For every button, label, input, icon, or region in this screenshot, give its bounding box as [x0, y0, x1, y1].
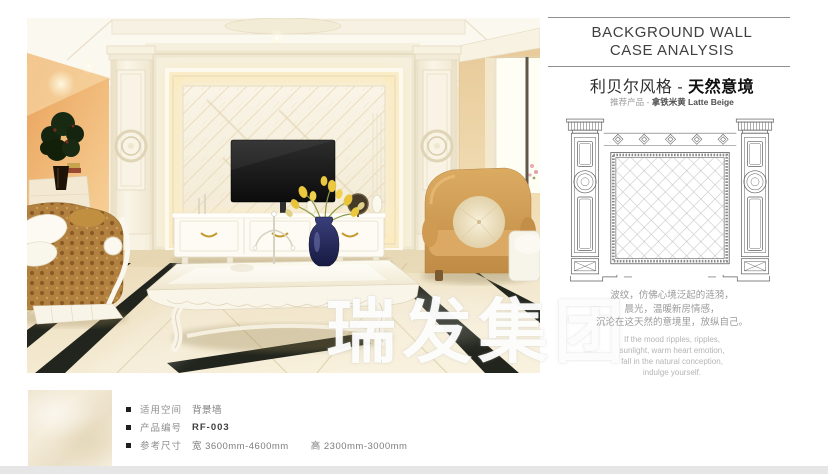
- catalog-page: 瑞发集团 BACKGROUND WALL CASE ANALYSIS 利贝尔风格…: [0, 0, 828, 474]
- right-column: [736, 119, 773, 274]
- sofa: [27, 203, 128, 328]
- info-value-height: 高 2300mm-3000mm: [311, 438, 408, 452]
- frieze-diamond-icon: [613, 134, 728, 144]
- recommended-product: 推荐产品 - 拿铁米黄 Latte Beige: [544, 96, 800, 108]
- description-cn-line: 波纹，仿佛心境泛起的涟漪，: [544, 289, 800, 303]
- divider-mid: [548, 66, 790, 67]
- description-en: If the mood ripples, ripples, sunlight, …: [544, 334, 800, 378]
- style-title-bold: 天然意境: [688, 79, 754, 96]
- recommended-product-prefix: 推荐产品 -: [610, 97, 652, 107]
- panel-title: BACKGROUND WALL CASE ANALYSIS: [544, 24, 800, 60]
- product-code: RF-003: [192, 422, 230, 433]
- description-en-line: indulge yourself.: [544, 367, 800, 378]
- left-column: [566, 119, 603, 274]
- description-cn-line: 晨光，温暖新房情感，: [544, 303, 800, 317]
- style-title-prefix: 利贝尔风格 -: [590, 79, 688, 96]
- divider-top: [548, 17, 790, 18]
- panel-title-line2: CASE ANALYSIS: [544, 42, 800, 60]
- side-chair: [509, 231, 540, 281]
- style-title: 利贝尔风格 - 天然意境: [544, 73, 800, 97]
- info-label: 参考尺寸: [140, 438, 192, 452]
- product-info-row-space: 适用空间 背景墙: [126, 400, 407, 418]
- info-label: 适用空间: [140, 402, 192, 416]
- description-en-line: If the mood ripples, ripples,: [544, 334, 800, 345]
- panel-title-line1: BACKGROUND WALL: [544, 24, 800, 42]
- right-panel: BACKGROUND WALL CASE ANALYSIS 利贝尔风格 - 天然…: [544, 0, 800, 400]
- description-cn-line: 沉沦在这天然的意境里，放纵自己。: [544, 316, 800, 330]
- product-info-row-size: 参考尺寸 宽 3600mm-4600mm 高 2300mm-3000mm: [126, 436, 407, 454]
- recommended-product-name: 拿铁米黄 Latte Beige: [652, 97, 734, 107]
- info-value-width: 宽 3600mm-4600mm: [192, 438, 289, 452]
- info-label: 产品编号: [140, 420, 192, 434]
- bottom-bar: [0, 466, 828, 474]
- description-en-line: sunlight, warm heart emotion,: [544, 345, 800, 356]
- left-pillar: [107, 46, 155, 234]
- info-value: 背景墙: [192, 402, 222, 416]
- base-profile: [570, 275, 769, 281]
- product-info-row-code: 产品编号 RF-003: [126, 418, 407, 436]
- tv-cabinet: [172, 213, 389, 266]
- description-cn: 波纹，仿佛心境泛起的涟漪， 晨光，温暖新房情感， 沉沦在这天然的意境里，放纵自己…: [544, 289, 800, 330]
- marble-swatch: [28, 390, 112, 467]
- description-en-line: fall in the natural conception,: [544, 356, 800, 367]
- bullet-icon: [126, 443, 131, 448]
- elevation-drawing: [566, 114, 774, 284]
- bullet-icon: [126, 407, 131, 412]
- product-info: 适用空间 背景墙 产品编号 RF-003 参考尺寸 宽 3600mm-4600m…: [126, 400, 407, 454]
- bullet-icon: [126, 425, 131, 430]
- lattice-panel: [611, 152, 729, 263]
